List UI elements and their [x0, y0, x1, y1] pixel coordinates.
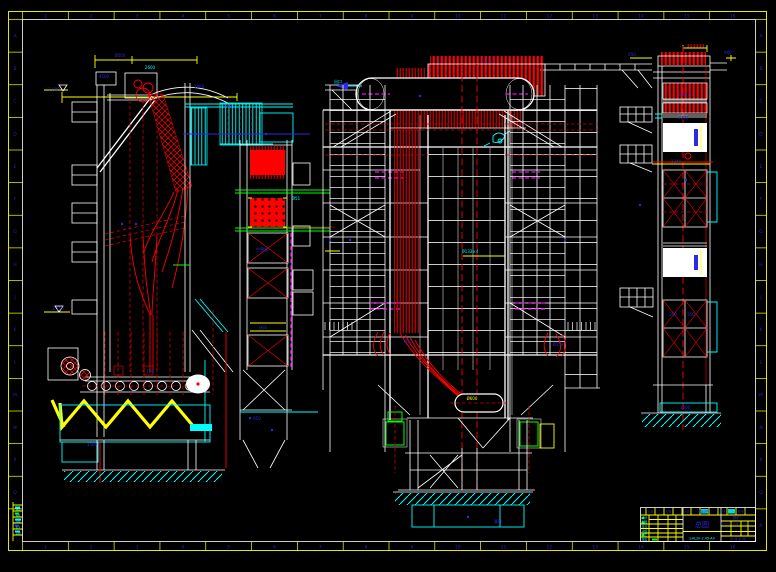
border-column-label: 14 [638, 13, 644, 19]
border-row-label: D [13, 131, 17, 137]
title-block-row-label: 审核 [642, 529, 648, 533]
border-row-label: F [14, 197, 17, 203]
corner-block-row: 日期 [16, 531, 21, 535]
border-row-label: K [760, 327, 764, 333]
annotation-text: 350 [669, 312, 677, 317]
annotation-text: 1500 [87, 442, 98, 447]
border-row-label: A [759, 33, 763, 39]
annotation-text: 350 [687, 312, 695, 317]
hanging-tubes [394, 110, 522, 128]
annotation-text: 3.150 [52, 306, 64, 311]
top-tube-comb [661, 52, 706, 65]
border-column-label: 11 [501, 13, 507, 19]
drawing-number: SHL20-2.45-AII [689, 537, 714, 541]
border-row-label: M [759, 392, 763, 398]
title-block-revision-cell: 标记 [648, 510, 654, 514]
casing-panel-1 [663, 123, 707, 152]
annotation-text: 750 [146, 369, 154, 374]
corner-block-row: 描校 [16, 513, 21, 517]
border-column-label: 7 [319, 545, 322, 551]
border-row-label: N [759, 425, 762, 431]
border-row-label: L [760, 360, 763, 366]
annotation-text: Ø600 [467, 396, 478, 401]
border-column-label: 3 [136, 545, 139, 551]
border-row-label: D [759, 131, 763, 137]
border-column-label: 6 [273, 13, 276, 19]
ground-hatch [642, 414, 721, 427]
border-column-label: 13 [592, 545, 598, 551]
title-block-row-label: 校对 [642, 524, 648, 528]
economizer-bank [250, 198, 285, 227]
border-row-label: G [759, 229, 763, 235]
title-block-revision-cell: 签名 [721, 510, 727, 514]
border-column-label: 6 [273, 545, 276, 551]
border-row-label: H [13, 262, 16, 268]
annotation-text: 1800 [194, 84, 205, 89]
title-block-revision-cell: 分区 [684, 510, 690, 514]
border-row-label: L [14, 360, 17, 366]
border-column-label: 5 [227, 13, 230, 19]
border-row-label: B [759, 66, 762, 72]
border-row-label: F [760, 197, 763, 203]
border-column-label: 16 [730, 545, 736, 551]
border-column-label: 14 [638, 545, 644, 551]
border-column-label: 9 [410, 13, 413, 19]
view-label: II—II [482, 59, 493, 65]
title-block-revision-cell: 更改文件号 [698, 510, 712, 514]
border-column-label: 10 [455, 13, 461, 19]
annotation-text: 1600 [680, 405, 691, 410]
border-column-label: 8 [365, 13, 368, 19]
annotation-text: 900 [724, 50, 732, 55]
border-row-label: E [14, 164, 17, 170]
border-row-label: B [13, 66, 16, 72]
border-column-label: 4 [181, 13, 184, 19]
border-column-label: 15 [684, 545, 690, 551]
border-row-label: K [14, 327, 18, 333]
title-block-header: 阶段标记 [721, 522, 732, 526]
annotation-text: 出口 [334, 78, 342, 84]
annotation-text: Ø133×4 [462, 249, 479, 254]
border-column-label: 12 [546, 13, 552, 19]
annotation-text: 2240 [671, 159, 682, 164]
annotation-text: Ø51 [404, 339, 413, 344]
border-column-label: 1 [44, 545, 47, 551]
elevation-mark [55, 85, 67, 312]
left-elevation-view [44, 55, 335, 483]
border-row-label: C [13, 99, 16, 105]
title-block-header: 质量 [733, 522, 739, 526]
border-column-label: 13 [592, 13, 598, 19]
annotation-text: Ø51 [292, 196, 301, 201]
border-column-label: 12 [546, 545, 552, 551]
border-row-label: C [759, 99, 762, 105]
annotation-text: 2600 [145, 65, 156, 70]
border-row-label: M [13, 392, 17, 398]
border-column-label: 1 [44, 13, 47, 19]
cad-canvas: 总图 SHL20-2.45-AII 锅炉厂 共1张 第1张 1122334455… [0, 0, 776, 572]
border-column-label: 3 [136, 13, 139, 19]
cad-drawing-sheet: 总图 SHL20-2.45-AII 锅炉厂 共1张 第1张 1122334455… [0, 0, 776, 572]
annotation-text: Ø500 [115, 53, 126, 58]
border-column-label: 15 [684, 13, 690, 19]
title-block-header: 比例 [743, 522, 749, 526]
grate-support-truss [52, 400, 225, 483]
company-name: 锅炉厂 [733, 515, 744, 520]
annotation-text: 650 [628, 52, 636, 57]
dimension-lines [44, 55, 237, 312]
furnace-rear-wall [185, 83, 190, 372]
annotation-text: Ø159 [553, 342, 564, 347]
border-column-label: 7 [319, 13, 322, 19]
title-block-revision-cell: 处数 [666, 510, 672, 514]
border-row-label: J [759, 294, 761, 300]
annotation-text: 700 [224, 104, 232, 109]
red-tube-bundle [105, 80, 192, 372]
convection-bank-2 [663, 103, 707, 113]
annotation-text: 基础 [494, 518, 502, 524]
annotation-text: 650 [253, 416, 261, 421]
border-column-label: 4 [181, 545, 184, 551]
airheater-upper [663, 170, 717, 227]
border-row-label: E [760, 164, 763, 170]
annotation-text: 1200 [678, 115, 689, 120]
annotation-text: 7.000 [48, 87, 60, 92]
furnace-roof [107, 73, 228, 103]
border-column-label: 2 [90, 13, 93, 19]
rear-elevation-view [620, 44, 736, 430]
waterwall-tubes [394, 128, 420, 333]
annotation-text: Ø51×3 [679, 92, 694, 97]
annotation-text: 4500 [99, 74, 110, 79]
ground-hatch [395, 493, 530, 505]
border-row-label: G [13, 229, 17, 235]
title-block-row-label: 设计 [642, 516, 648, 520]
chain-grate [48, 332, 210, 395]
border-row-label: Q [759, 490, 763, 496]
border-row-label: P [760, 458, 763, 464]
title-block-row-label: 批准 [642, 538, 648, 542]
border-row-label: P [14, 458, 17, 464]
cyan-fitting [484, 131, 510, 146]
corner-block-row: 签字 [16, 525, 21, 529]
annotation-text: 送风 [259, 324, 267, 330]
annotation-text: 空预器 [256, 246, 268, 252]
corner-block-row: 底图 [16, 519, 21, 523]
border-row-label: J [13, 294, 15, 300]
border-row-label: N [13, 425, 16, 431]
border-column-label: 9 [410, 545, 413, 551]
border-column-label: 10 [455, 545, 461, 551]
border-column-label: 11 [501, 545, 507, 551]
border-row-label: A [13, 33, 17, 39]
airheater-lower [663, 300, 717, 357]
border-column-label: 16 [730, 13, 736, 19]
access-platforms [620, 107, 653, 317]
border-row-label: R [759, 523, 762, 529]
border-column-label: 8 [365, 545, 368, 551]
view-label: I—I [436, 59, 444, 65]
border-column-label: 2 [90, 545, 93, 551]
border-row-label: H [759, 262, 762, 268]
sheet-note: 共1张 第1张 [730, 537, 746, 541]
title-block-row-label: 工艺 [642, 533, 648, 537]
title-block-revision-cell: 年月日 [737, 510, 745, 514]
title-block-row-label: 制图 [642, 520, 648, 524]
left-structural-tower [72, 72, 155, 437]
border-column-label: 5 [227, 545, 230, 551]
casing-panel-2 [663, 248, 707, 277]
base-and-foundation [393, 420, 535, 527]
ground-hatch [64, 471, 222, 482]
border-row-label: Q [13, 490, 17, 496]
corner-block-row: 描图 [16, 507, 21, 511]
drawing-title: 总图 [695, 520, 709, 529]
tube-bank-solid [250, 150, 285, 175]
